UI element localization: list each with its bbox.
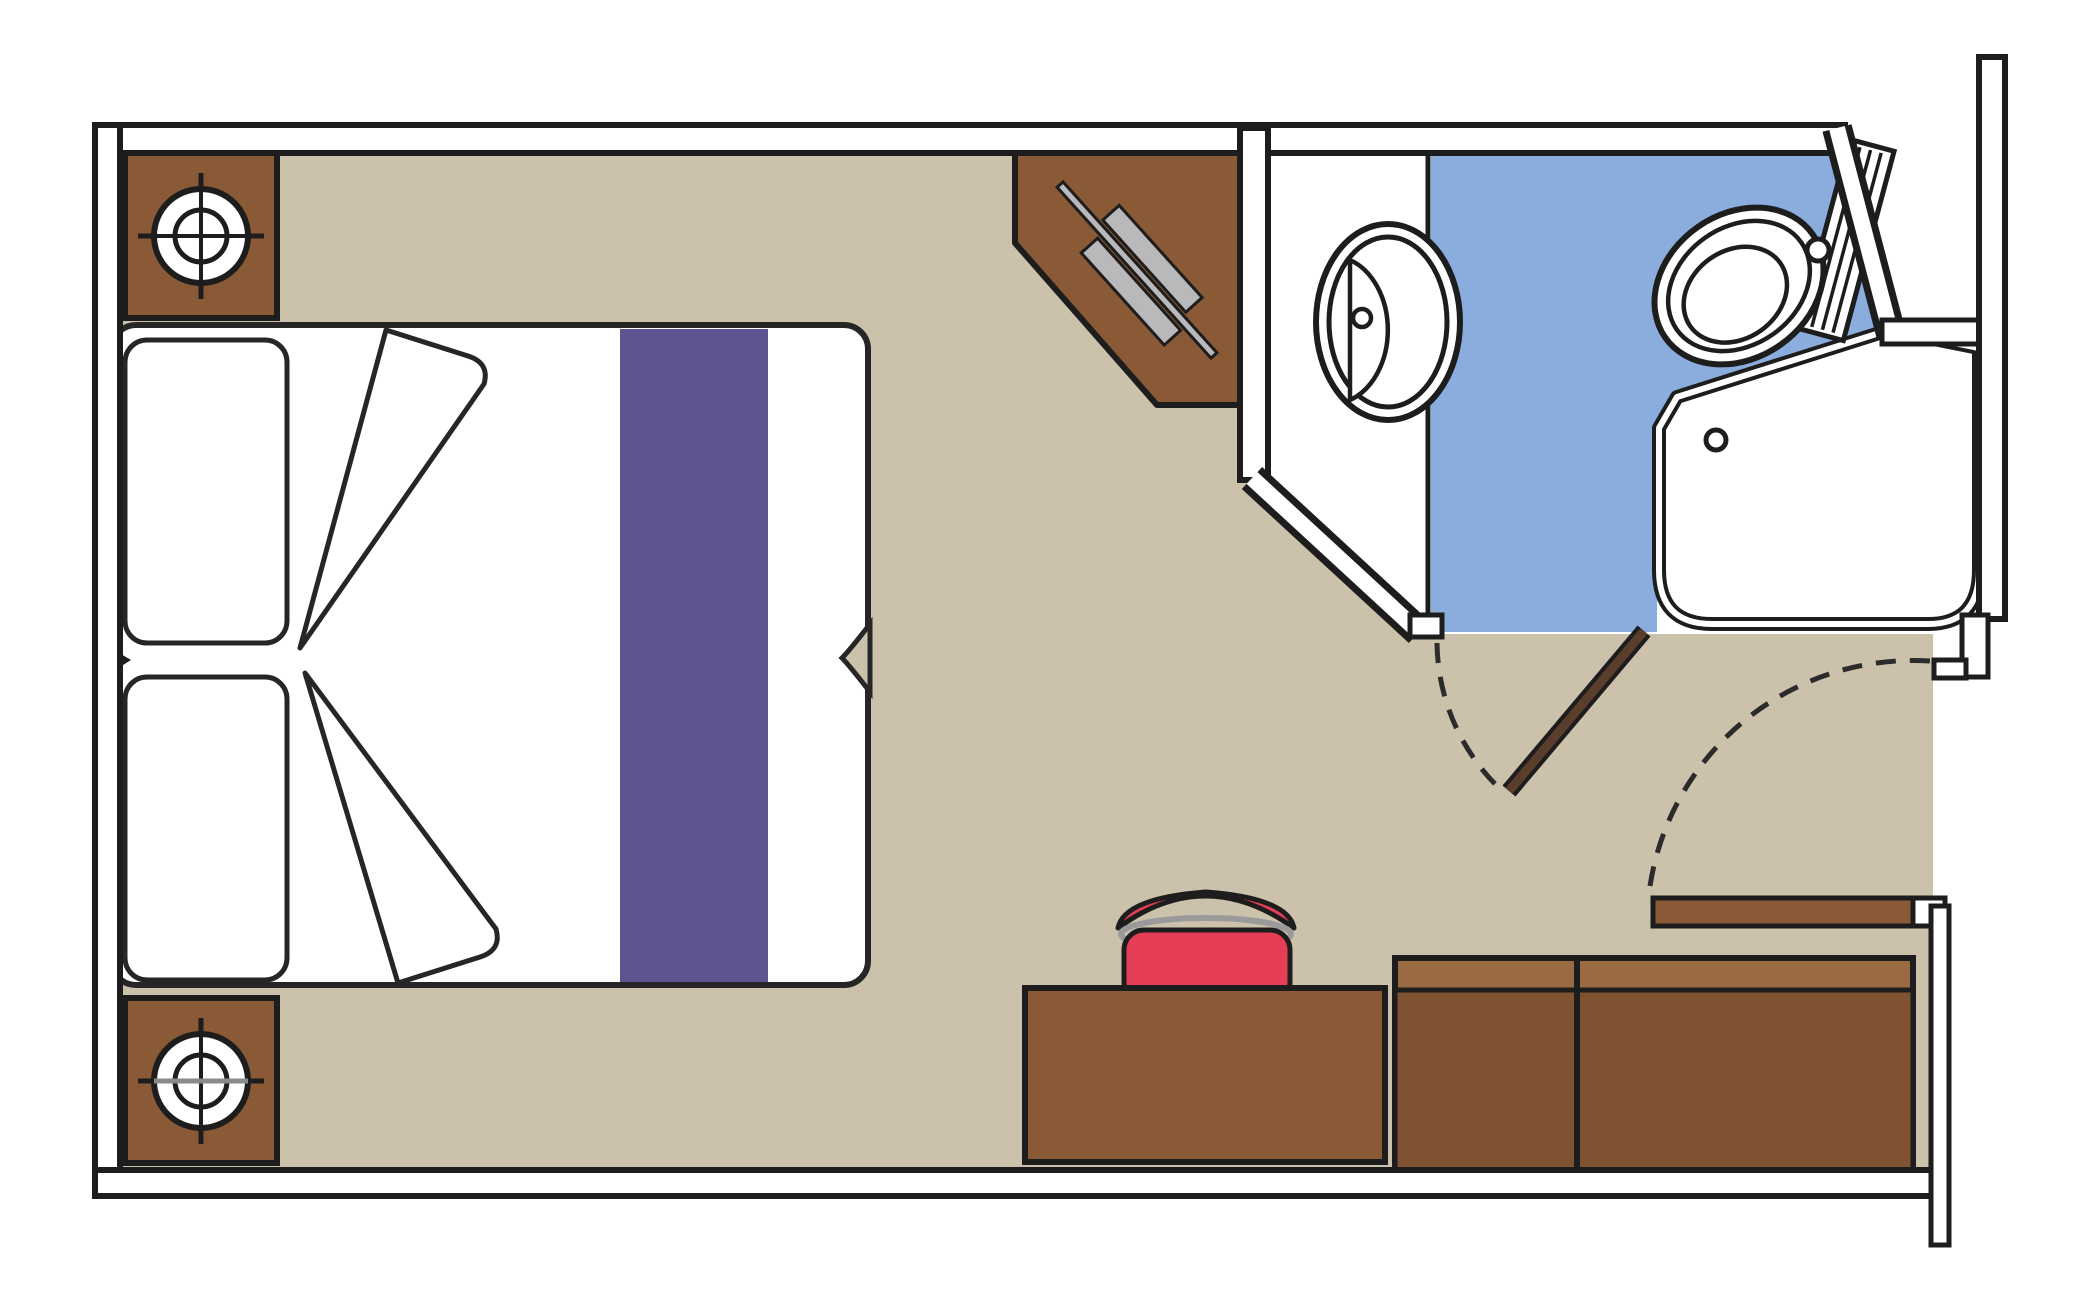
sink-drain-icon [1353,309,1371,327]
floor-plan-svg [0,0,2099,1299]
shower-drain-icon [1706,430,1726,450]
wall-outer-right [1979,57,2005,619]
wall-jamb-foot [1934,660,1966,678]
nightstand-top [125,153,277,318]
wardrobe-body [1395,990,1913,1172]
bed-runner [620,329,768,982]
wall-left [95,125,120,1196]
double-bed [106,325,870,985]
desk [1025,988,1385,1162]
nightstand-bottom [125,998,277,1163]
pillow [125,677,287,980]
wall-doorjamb-bathroom [1410,615,1442,637]
floor-plan-canvas [0,0,2099,1299]
sink-basin [1316,224,1460,420]
pillow [125,340,287,643]
wall-lower-right [1931,906,1949,1245]
wall-bottom [95,1170,1947,1196]
wall-bathroom-divider [1240,128,1268,480]
toilet-flush-button [1807,239,1829,261]
wall-top [95,125,1845,153]
entrance-door-leaf [1653,898,1917,926]
wardrobe [1395,958,1913,1172]
